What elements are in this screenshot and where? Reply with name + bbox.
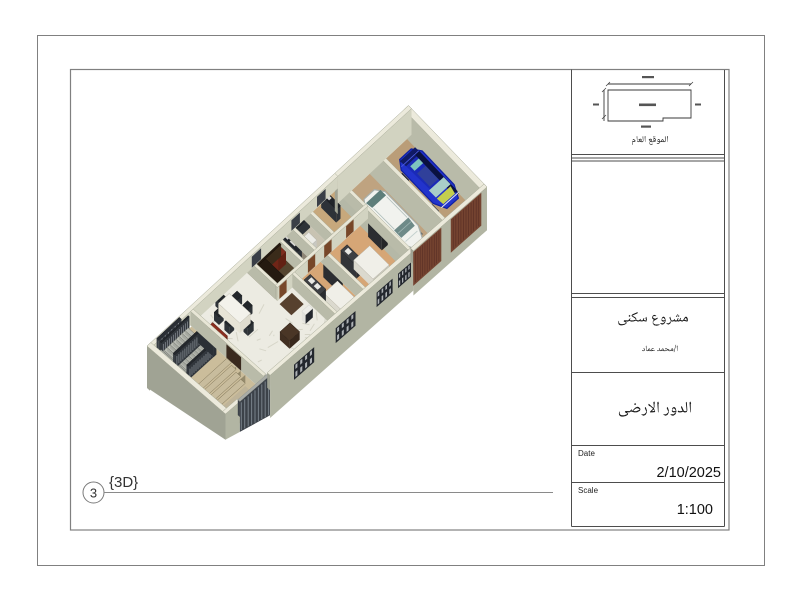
svg-text:1:100: 1:100 — [677, 502, 713, 518]
svg-text:Date: Date — [578, 449, 595, 458]
svg-text:3: 3 — [90, 486, 97, 501]
svg-text:2/10/2025: 2/10/2025 — [656, 465, 721, 481]
svg-text:{3D}: {3D} — [109, 474, 138, 491]
svg-text:Scale: Scale — [578, 486, 599, 495]
